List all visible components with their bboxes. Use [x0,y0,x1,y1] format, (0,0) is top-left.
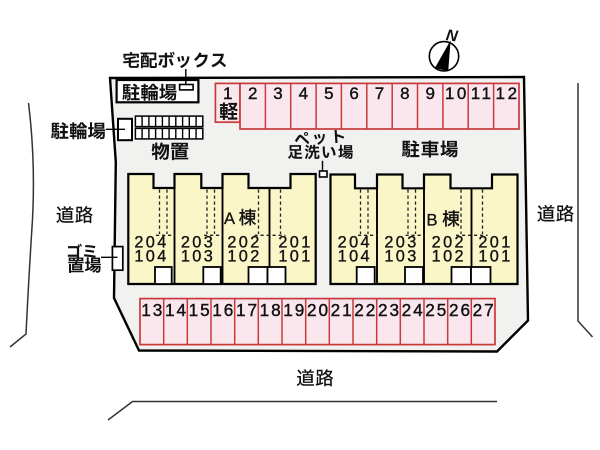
svg-text:101: 101 [278,247,312,265]
svg-text:14: 14 [165,300,188,320]
svg-text:7: 7 [375,84,384,103]
svg-text:104: 104 [338,247,372,265]
svg-text:12: 12 [496,84,520,103]
svg-text:4: 4 [299,84,308,103]
svg-text:21: 21 [331,300,354,320]
svg-text:104: 104 [134,247,168,265]
svg-text:23: 23 [378,300,401,320]
svg-text:8: 8 [400,84,409,103]
svg-text:103: 103 [181,247,215,265]
svg-text:2: 2 [248,84,257,103]
svg-text:10: 10 [445,84,469,103]
svg-text:20: 20 [307,300,330,320]
svg-text:101: 101 [478,247,512,265]
svg-text:3: 3 [273,84,282,103]
svg-text:13: 13 [141,300,164,320]
svg-text:18: 18 [260,300,283,320]
svg-text:22: 22 [354,300,377,320]
svg-text:103: 103 [384,247,418,265]
svg-text:102: 102 [432,247,466,265]
svg-text:24: 24 [402,300,425,320]
svg-text:19: 19 [283,300,306,320]
svg-text:27: 27 [473,300,496,320]
svg-text:26: 26 [449,300,472,320]
svg-text:9: 9 [425,84,434,103]
svg-text:16: 16 [212,300,235,320]
svg-text:15: 15 [189,300,212,320]
svg-text:17: 17 [236,300,259,320]
svg-text:N: N [445,27,459,46]
svg-text:5: 5 [324,84,333,103]
svg-text:1: 1 [223,84,232,103]
svg-text:25: 25 [425,300,448,320]
svg-text:11: 11 [471,84,494,103]
svg-text:6: 6 [349,84,358,103]
svg-text:A: A [224,210,235,228]
svg-text:B: B [426,211,437,229]
svg-text:102: 102 [227,247,261,265]
